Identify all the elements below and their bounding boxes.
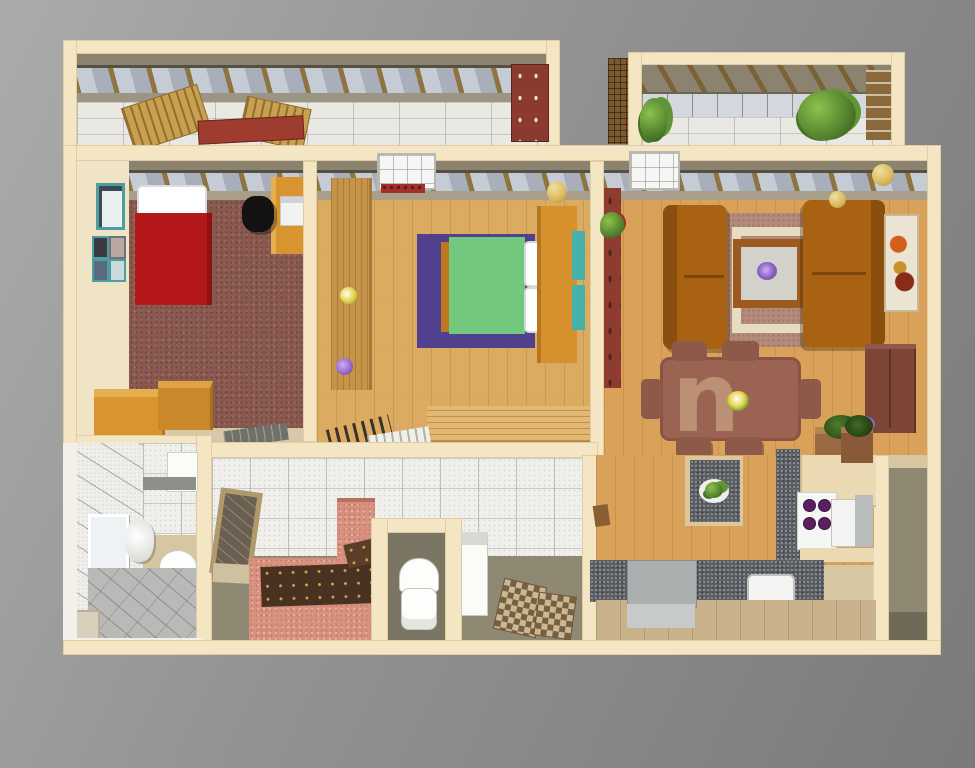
picture-frame <box>109 236 126 259</box>
bedroom-middle-roof-band <box>317 161 590 170</box>
balcony-wall <box>63 40 77 161</box>
outer-wall-left-cut <box>63 443 77 640</box>
sofa-cushion-line <box>812 272 866 275</box>
balcony-side-window <box>866 70 891 140</box>
wall-lamp <box>829 191 846 208</box>
wall-shelf <box>572 285 585 330</box>
wc-post <box>445 518 462 645</box>
balcony-roof-band <box>77 54 546 65</box>
toilet-tank <box>399 558 439 592</box>
inner-wall <box>196 435 212 655</box>
inner-wall <box>590 161 604 457</box>
dining-chair <box>672 341 707 361</box>
chest-split-line <box>889 349 891 428</box>
wash-basin <box>125 519 154 562</box>
double-bed <box>449 237 525 334</box>
flower-pot <box>336 358 353 375</box>
bench <box>427 406 590 445</box>
washing-machine <box>461 532 488 616</box>
wc-post <box>371 518 388 645</box>
wardrobe <box>331 178 372 390</box>
living-wall-shadow <box>604 191 927 200</box>
balcony-wall <box>63 40 560 54</box>
wall-lamp <box>872 164 894 186</box>
bedroom-left-roof-band <box>129 161 303 170</box>
storage-chest <box>511 64 549 142</box>
skylight-flowerbox <box>381 184 425 193</box>
bath-ledge <box>213 563 254 584</box>
picture-frame <box>96 183 125 230</box>
table-flowers <box>727 391 749 411</box>
microwave-box-side <box>855 495 873 547</box>
island-plant <box>705 482 723 498</box>
stove-burner <box>818 499 831 512</box>
dining-chair <box>799 379 821 419</box>
balcony-plant <box>640 98 668 142</box>
prep-table-side <box>627 604 695 628</box>
single-bed <box>135 213 212 305</box>
floor-plan-render: n <box>0 0 975 768</box>
balcony-roof-beams <box>642 65 891 92</box>
outer-wall-right <box>927 145 941 655</box>
balcony-wall <box>628 52 905 65</box>
office-chair <box>242 196 274 232</box>
computer <box>280 196 304 226</box>
table-flowers <box>757 262 777 280</box>
flower-pot <box>340 287 357 304</box>
dining-chair <box>641 379 662 419</box>
painting <box>884 214 919 312</box>
picture-frame <box>109 259 126 282</box>
wall-lamp <box>547 181 567 203</box>
bathroom-floor <box>88 568 196 644</box>
picture-frame <box>92 259 109 282</box>
inner-wall <box>196 442 598 458</box>
balcony-plant <box>798 90 856 140</box>
stove-burner <box>818 517 831 530</box>
drawers <box>158 381 213 430</box>
outer-wall-bottom <box>63 640 941 655</box>
dining-chair <box>722 341 759 361</box>
stove-burner <box>803 517 816 530</box>
bathroom-shelf <box>143 477 196 490</box>
wall-shelf <box>572 231 585 280</box>
picture-frame <box>92 236 109 259</box>
corner-shelf <box>593 504 611 527</box>
outer-wall-top <box>63 145 941 161</box>
sofa-cushion-line <box>684 275 724 278</box>
headboard-unit <box>537 206 577 363</box>
skylight <box>629 151 680 190</box>
outer-wall-left <box>63 145 77 445</box>
prep-table-top <box>627 560 697 608</box>
toilet-bowl <box>401 588 437 630</box>
cabinet-plant <box>600 212 624 238</box>
shower-tray <box>74 610 100 640</box>
stove-burner <box>803 499 816 512</box>
bath-mat <box>533 592 577 641</box>
balcony-left <box>63 40 560 161</box>
inner-wall <box>303 161 317 442</box>
counter-plant <box>845 415 873 437</box>
